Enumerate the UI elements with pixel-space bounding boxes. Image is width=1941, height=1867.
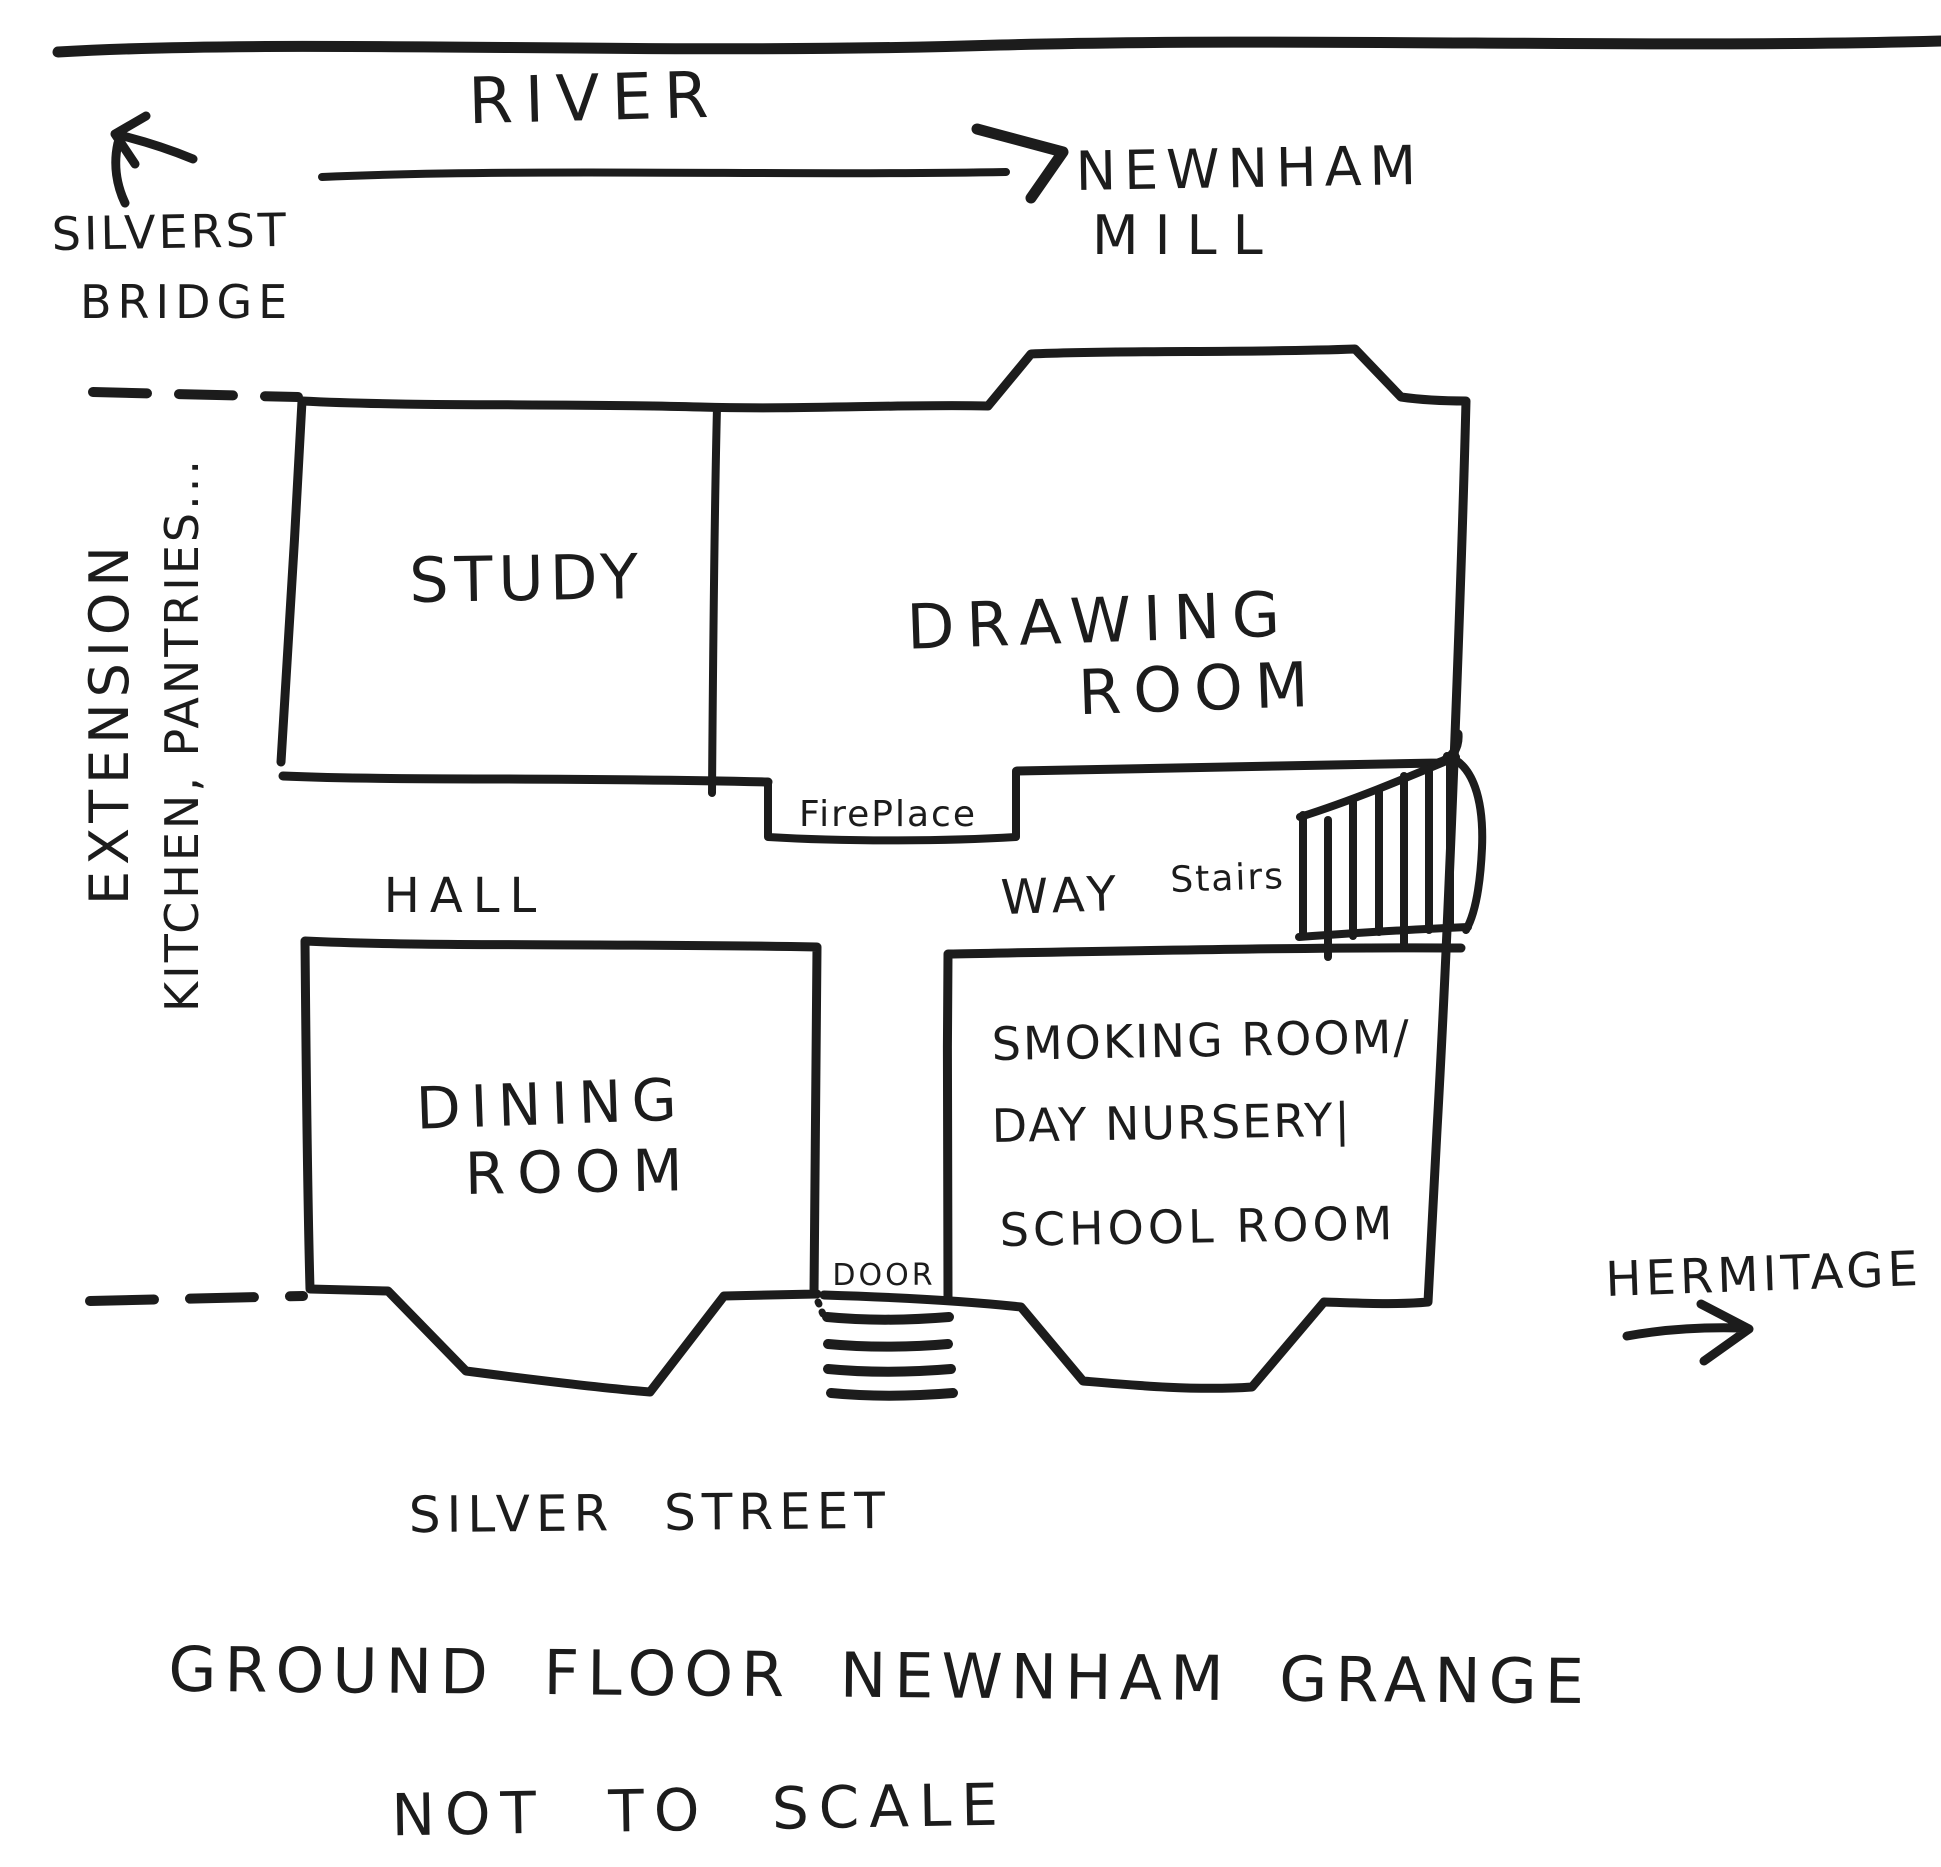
study-room-label: STUDY bbox=[409, 540, 645, 617]
extension-dashed-line-bottom bbox=[90, 1296, 303, 1301]
dining-room-label-line2: ROOM bbox=[464, 1136, 695, 1208]
floor-plan-sketch: RIVER SILVERST BRIDGE NEWNHAM MILL EXTEN… bbox=[0, 0, 1941, 1867]
sketch-page: RIVER SILVERST BRIDGE NEWNHAM MILL EXTEN… bbox=[0, 0, 1941, 1867]
silver-street-label: SILVER STREET bbox=[409, 1482, 892, 1544]
river-label: RIVER bbox=[468, 59, 722, 140]
hermitage-arrow-icon bbox=[1627, 1304, 1749, 1361]
left-wall-upper bbox=[281, 401, 302, 762]
way-label: WAY bbox=[1000, 866, 1123, 926]
hall-north-wall-left bbox=[283, 776, 768, 782]
dining-room-label-line1: DINING bbox=[415, 1065, 688, 1142]
hall-north-wall-right bbox=[1017, 734, 1458, 771]
hall-label: HALL bbox=[384, 868, 546, 924]
door-label: DOOR bbox=[832, 1258, 935, 1293]
fireplace-label: FirePlace bbox=[799, 794, 977, 835]
smoking-room-label-line3: SCHOOL ROOM bbox=[999, 1196, 1397, 1257]
river-arrow-icon bbox=[977, 129, 1063, 198]
study-drawing-divider-wall bbox=[712, 407, 717, 793]
silver-st-bridge-label-line1: SILVERST bbox=[51, 203, 289, 261]
door-steps bbox=[818, 1302, 953, 1396]
smoking-room-label-line2: DAY NURSERY| bbox=[991, 1093, 1352, 1154]
hermitage-label: HERMITAGE bbox=[1604, 1241, 1922, 1308]
scale-note-label: NOT TO SCALE bbox=[391, 1771, 1008, 1850]
kitchen-pantries-label: KITCHEN, PANTRIES... bbox=[155, 457, 209, 1012]
smoking-room-label-line1: SMOKING ROOM/ bbox=[991, 1010, 1411, 1071]
newnham-mill-label-line2: MILL bbox=[1092, 204, 1279, 267]
stairs-label: Stairs bbox=[1170, 856, 1286, 901]
plan-title-label: GROUND FLOOR NEWNHAM GRANGE bbox=[168, 1633, 1592, 1718]
river-bank-line bbox=[58, 41, 1941, 52]
drawing-room-label-line2: ROOM bbox=[1077, 648, 1322, 729]
river-flow-line bbox=[322, 172, 1006, 177]
bridge-arrow-icon bbox=[115, 116, 193, 203]
silver-st-bridge-label-line2: BRIDGE bbox=[80, 275, 293, 329]
extension-label: EXTENSION bbox=[78, 540, 141, 905]
newnham-mill-label-line1: NEWNHAM bbox=[1075, 134, 1424, 203]
extension-dashed-line-top bbox=[93, 392, 298, 397]
